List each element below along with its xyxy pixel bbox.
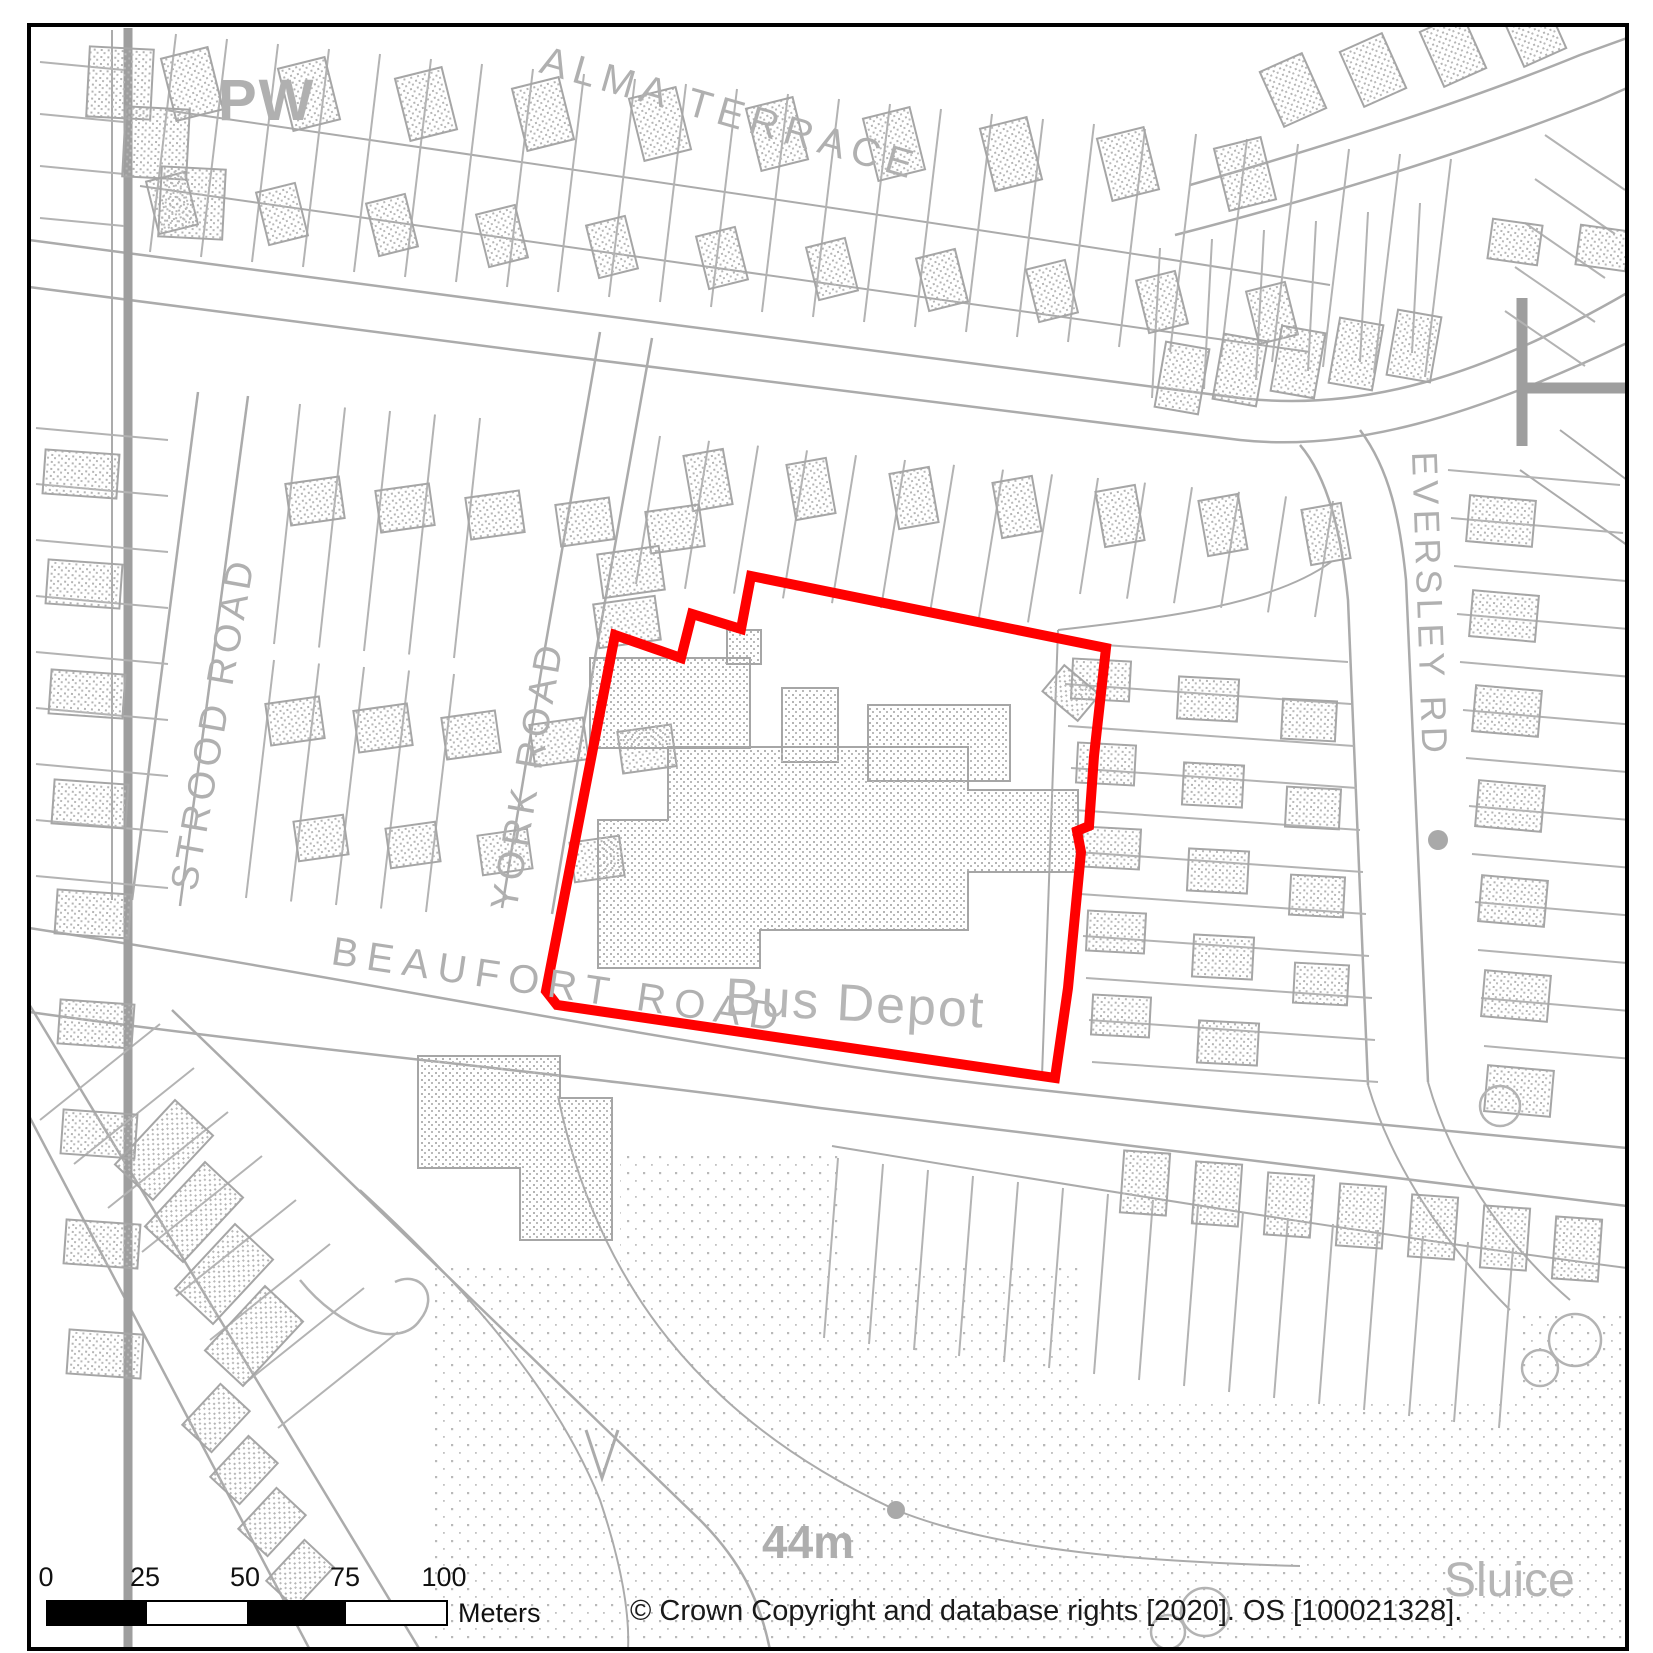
scale-bar-ticks: 0 25 50 75 100 (46, 1562, 606, 1594)
road-label-strood-road: STROOD ROAD (164, 553, 264, 893)
map-viewport: PW ALMA TERRACE STROOD ROAD YORK ROAD BE… (0, 0, 1653, 1653)
scale-bar-tick: 100 (421, 1562, 466, 1593)
scale-bar-tick: 50 (230, 1562, 260, 1593)
scale-bar-segments (46, 1600, 448, 1626)
road-junction-dot (1428, 830, 1448, 850)
scale-bar-segment (147, 1602, 247, 1624)
scale-bar-segment (247, 1602, 346, 1624)
spot-height-dot (887, 1501, 905, 1519)
scale-bar-segment (48, 1602, 147, 1624)
scale-bar-tick: 0 (38, 1562, 53, 1593)
map-canvas: PW ALMA TERRACE STROOD ROAD YORK ROAD BE… (0, 0, 1653, 1653)
scale-bar-segment (346, 1602, 446, 1624)
sluice-label: Sluice (1444, 1554, 1575, 1607)
pw-label: PW (218, 68, 315, 133)
road-label-alma-terrace: ALMA TERRACE (536, 38, 925, 188)
spot-height-label: 44m (762, 1516, 854, 1568)
scale-bar-units: Meters (458, 1598, 541, 1629)
scale-bar-tick: 25 (130, 1562, 160, 1593)
attribution-text: © Crown Copyright and database rights [2… (630, 1595, 1462, 1628)
scale-bar: 0 25 50 75 100 Meters (46, 1562, 606, 1632)
scale-bar-tick: 75 (330, 1562, 360, 1593)
